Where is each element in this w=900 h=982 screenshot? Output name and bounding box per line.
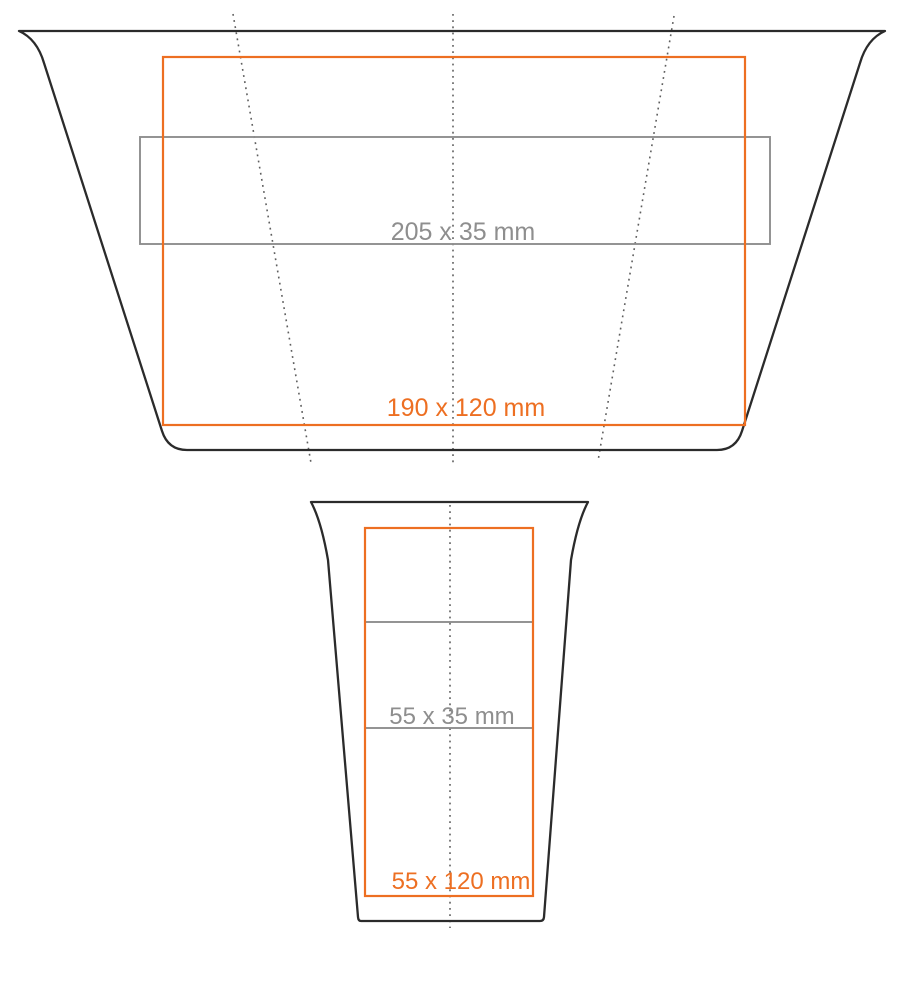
diagram-canvas: 205 x 35 mm 190 x 120 mm 55 x 35 mm 55 x… — [0, 0, 900, 982]
front-view-cup: 55 x 35 mm 55 x 120 mm — [311, 502, 588, 928]
top-view-cup-wrap: 205 x 35 mm 190 x 120 mm — [19, 14, 885, 463]
seam-dotted-line-right — [598, 16, 674, 461]
seam-dotted-line-left — [233, 14, 311, 463]
print-area-label-front-view: 55 x 120 mm — [392, 868, 531, 895]
engraving-area-label-front-view: 55 x 35 mm — [389, 703, 514, 730]
engraving-area-label-top-view: 205 x 35 mm — [391, 218, 536, 246]
cup-print-template-diagram: 205 x 35 mm 190 x 120 mm 55 x 35 mm 55 x… — [0, 0, 900, 982]
print-area-label-top-view: 190 x 120 mm — [387, 394, 545, 422]
